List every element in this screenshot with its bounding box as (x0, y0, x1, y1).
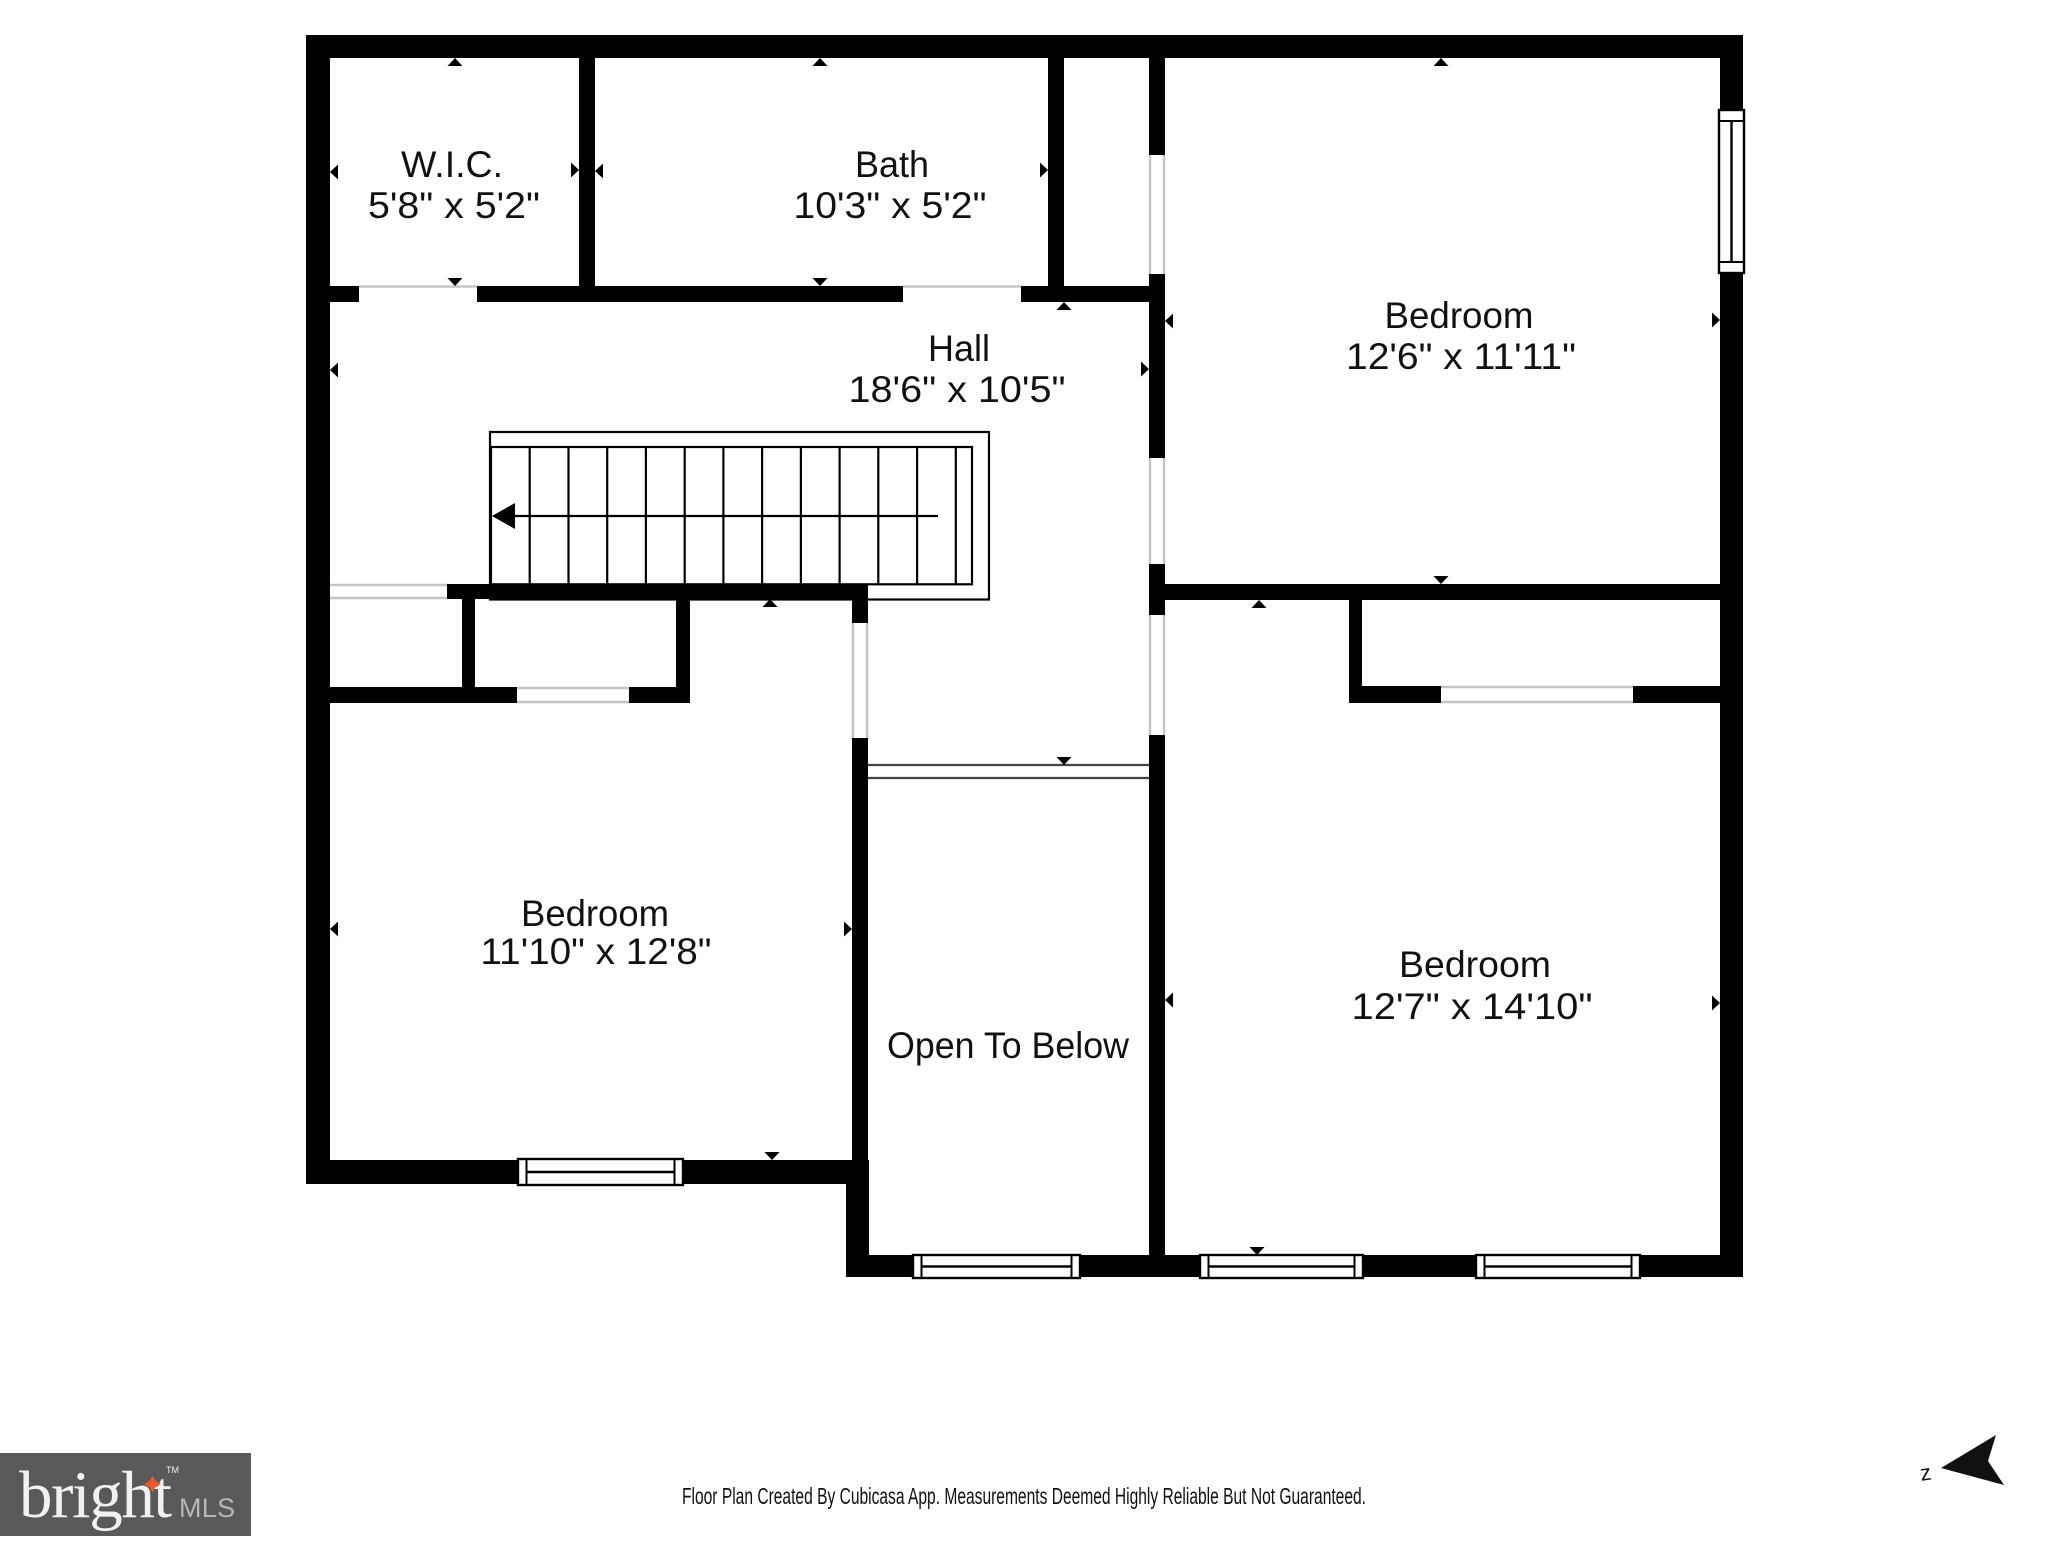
svg-text:12'6" x 11'11": 12'6" x 11'11" (1346, 336, 1576, 377)
svg-text:Bath: Bath (855, 144, 929, 185)
svg-text:bright: bright (19, 1458, 172, 1532)
svg-text:Bedroom: Bedroom (521, 893, 669, 934)
svg-text:Floor Plan Created By Cubicasa: Floor Plan Created By Cubicasa App. Meas… (682, 1483, 1366, 1509)
svg-text:10'3" x 5'2": 10'3" x 5'2" (794, 185, 987, 226)
svg-text:12'7" x 14'10": 12'7" x 14'10" (1352, 986, 1593, 1027)
svg-text:Hall: Hall (928, 328, 990, 369)
svg-text:Bedroom: Bedroom (1399, 944, 1551, 985)
svg-text:Open To Below: Open To Below (887, 1025, 1129, 1066)
svg-text:5'8" x 5'2": 5'8" x 5'2" (368, 185, 540, 226)
svg-text:11'10" x 12'8": 11'10" x 12'8" (481, 931, 712, 972)
svg-text:TM: TM (166, 1465, 179, 1475)
svg-text:18'6" x 10'5": 18'6" x 10'5" (849, 369, 1066, 410)
svg-text:Bedroom: Bedroom (1385, 295, 1534, 336)
svg-text:W.I.C.: W.I.C. (401, 144, 503, 185)
svg-text:MLS: MLS (179, 1493, 235, 1523)
